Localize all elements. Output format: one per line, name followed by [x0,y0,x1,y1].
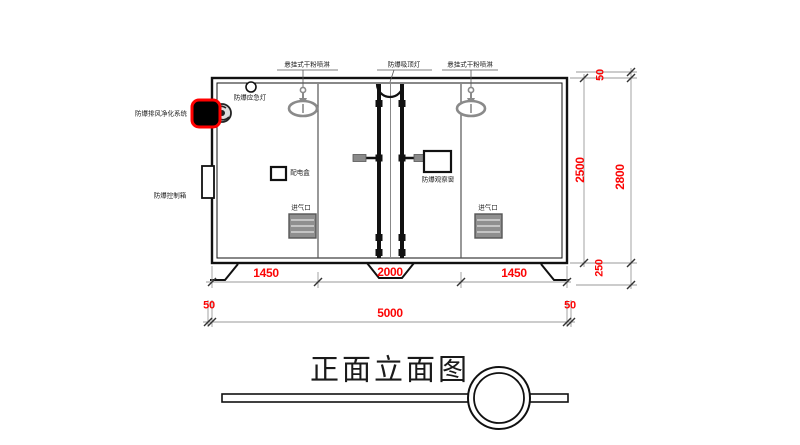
dim-right-total-2800: 2800 [614,164,626,190]
elevation-drawing-page: 悬挂式干粉喷淋 防爆吸顶灯 悬挂式干粉喷淋 防爆应急灯 防爆排风净化系统 防爆控… [0,0,800,445]
label-ceiling-lamp: 防爆吸顶灯 [388,61,421,68]
door-hinge [376,249,383,256]
label-observation-window: 防爆观察窗 [422,176,455,183]
control-box-icon [202,166,214,198]
foot-left [210,264,238,280]
container-outline [212,78,567,263]
dim-right-2500: 2500 [574,157,586,183]
door-hinge [376,100,383,107]
dim-bottom-offset-right-50: 50 [564,301,576,312]
dim-bottom-left-1450: 1450 [253,267,279,279]
label-emergency-lamp: 防爆应急灯 [234,94,267,101]
air-vent-right [475,214,502,238]
door-frame-left [377,84,381,258]
exhaust-purifier-box [192,100,220,127]
dim-right-top-50: 50 [596,69,607,81]
drawing-title: 正面立面图 [310,357,470,386]
door-hinge [399,100,406,107]
label-air-inlet-right: 进气口 [478,204,498,211]
emergency-lamp-icon [246,82,256,92]
label-sprinkler-left: 悬挂式干粉喷淋 [284,61,330,68]
label-power-box: 配电盒 [290,169,310,176]
dim-bottom-right-1450: 1450 [501,267,527,279]
dim-bottom-center-2000: 2000 [377,266,403,278]
dim-bottom-offset-left-50: 50 [203,301,215,312]
door-frame-right [400,84,404,258]
label-sprinkler-right: 悬挂式干粉喷淋 [447,61,493,68]
air-vent-left [289,214,316,238]
section-marker-circle-inner [474,373,524,423]
door-hinge [399,249,406,256]
observation-window-icon [424,151,451,172]
foot-right [541,264,569,280]
dim-right-base-250: 250 [595,259,606,276]
door-hinge [399,234,406,241]
label-control-box: 防爆控制箱 [154,192,187,199]
door-hinge [376,234,383,241]
dim-bottom-total-5000: 5000 [377,307,403,319]
power-box-icon [271,167,286,180]
label-air-inlet-left: 进气口 [291,204,311,211]
label-exhaust-purifier: 防爆排风净化系统 [135,110,187,117]
